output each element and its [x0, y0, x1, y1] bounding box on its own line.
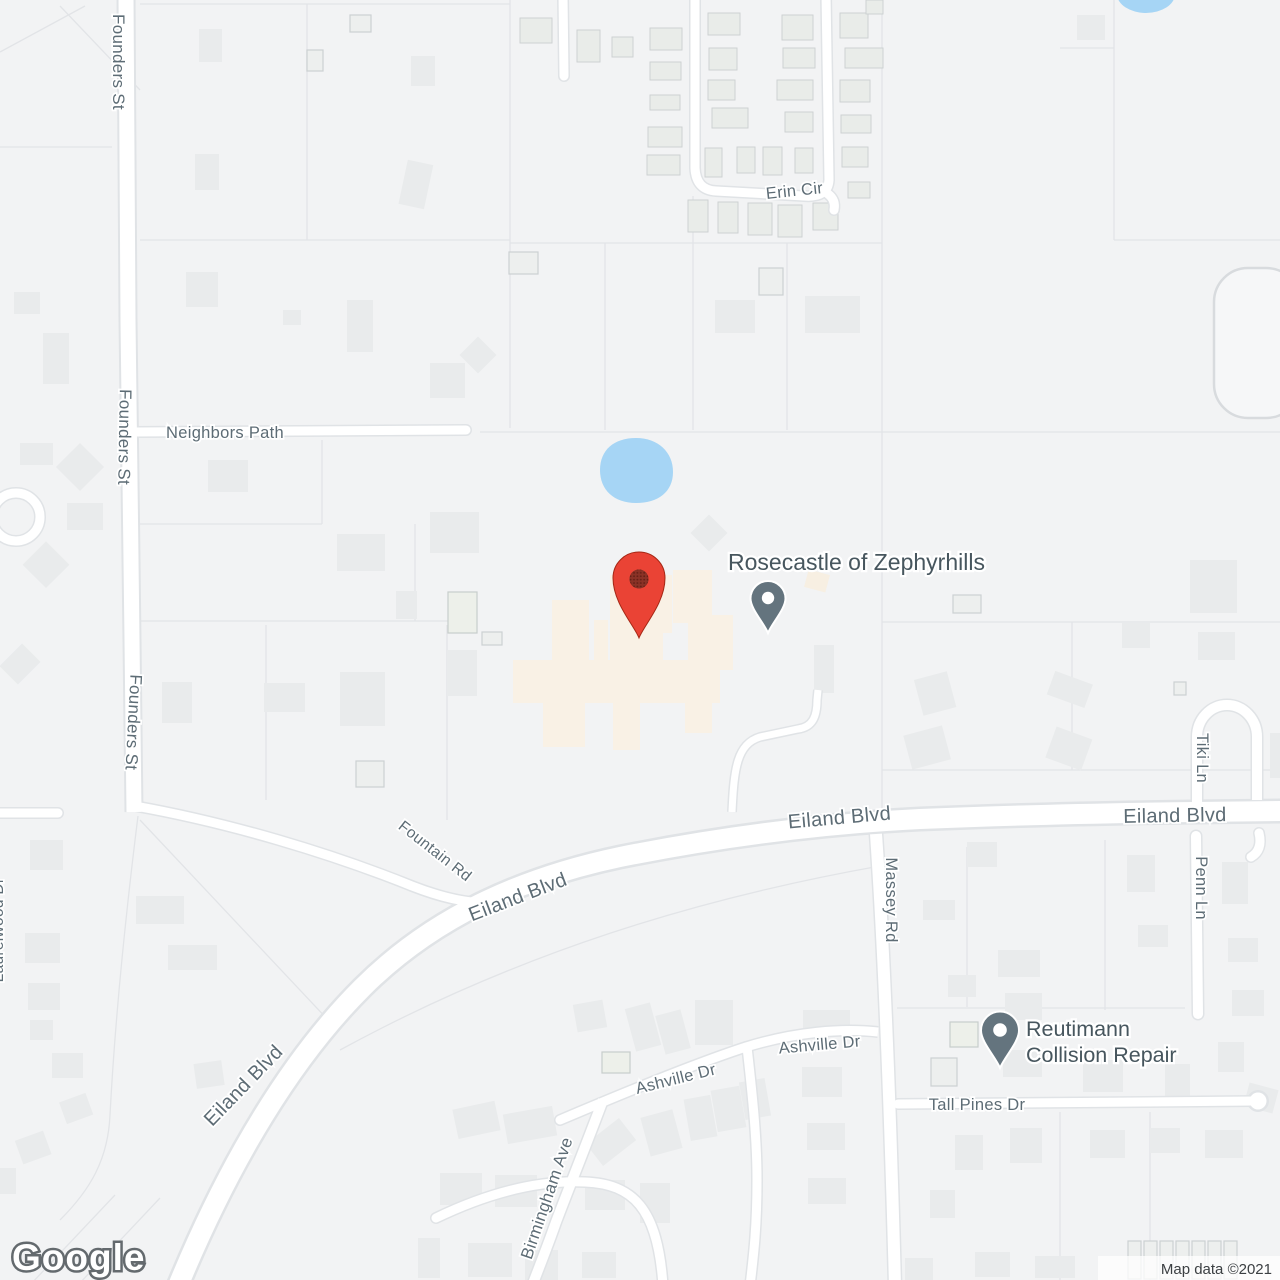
poi-pin-reutimann-dot	[993, 1023, 1007, 1037]
road-label-penn-ln: Penn Ln	[1192, 856, 1210, 920]
road-label-massey-rd: Massey Rd	[882, 857, 900, 942]
map-viewport[interactable]: Founders St Founders St Founders St Neig…	[0, 0, 1280, 1280]
map-canvas[interactable]: Founders St Founders St Founders St Neig…	[0, 0, 1280, 1280]
poi-label-rosecastle[interactable]: Rosecastle of Zephyrhills	[728, 549, 985, 575]
road-label-tall-pines-dr: Tall Pines Dr	[929, 1096, 1026, 1114]
poi-label-reutimann-line2[interactable]: Collision Repair	[1026, 1043, 1177, 1067]
poi-pin-rosecastle-dot	[762, 592, 774, 604]
poi-label-reutimann-line1[interactable]: Reutimann	[1026, 1017, 1130, 1041]
road-label-founders-st: Founders St	[109, 14, 128, 110]
road-label-tiki-ln: Tiki Ln	[1193, 733, 1211, 783]
attribution-text: Map data ©2021	[1161, 1261, 1272, 1278]
road-label-founders-st: Founders St	[114, 389, 135, 485]
road-label-eiland-blvd: Eiland Blvd	[1123, 804, 1227, 828]
attribution: Map data ©2021	[1098, 1256, 1280, 1280]
track-outline	[1214, 268, 1280, 418]
google-logo[interactable]: Google	[12, 1237, 145, 1278]
road-label-laurelwood-dr: Laurelwood Dr	[0, 878, 7, 983]
road-label-neighbors-path: Neighbors Path	[166, 424, 284, 442]
